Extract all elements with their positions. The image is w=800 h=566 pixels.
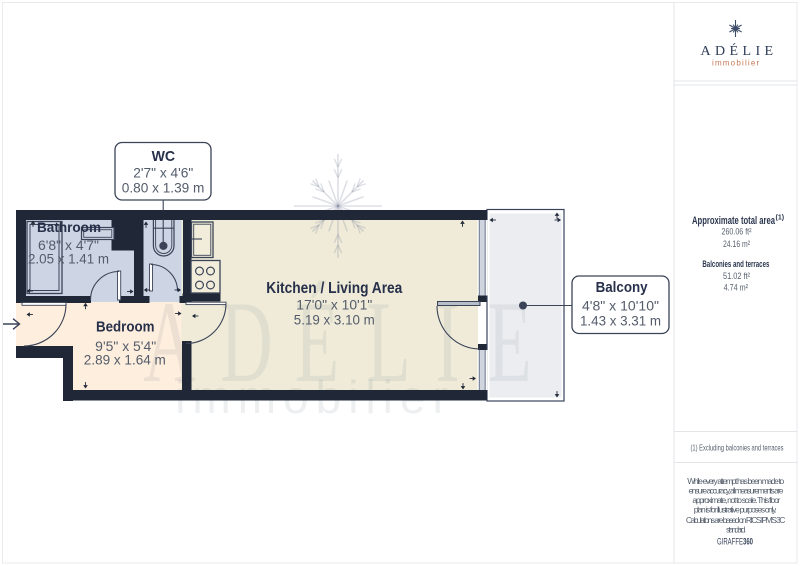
svg-text:Balconies and terraces: Balconies and terraces — [702, 259, 769, 270]
svg-text:Calculations are based on RICS: Calculations are based on RICS IPMS 3C — [686, 515, 786, 525]
svg-text:Kitchen / Living Area: Kitchen / Living Area — [266, 280, 402, 297]
svg-text:While every attempt has been m: While every attempt has been made to — [687, 476, 784, 486]
svg-text:5.19 x 3.10 m: 5.19 x 3.10 m — [294, 312, 375, 328]
svg-text:standard.: standard. — [726, 525, 746, 535]
svg-text:2.05 x 1.41 m: 2.05 x 1.41 m — [28, 252, 109, 267]
svg-text:51.02 ft²: 51.02 ft² — [723, 271, 750, 282]
svg-text:1.43 x 3.31 m: 1.43 x 3.31 m — [580, 313, 661, 329]
svg-text:Approximate total area: Approximate total area — [692, 215, 776, 227]
svg-text:17'0" x 10'1": 17'0" x 10'1" — [296, 297, 372, 313]
svg-text:4.74 m²: 4.74 m² — [724, 283, 749, 294]
svg-text:(1) Excluding balconies and te: (1) Excluding balconies and terraces — [691, 443, 784, 453]
svg-text:Bedroom: Bedroom — [96, 318, 155, 335]
svg-text:2.89 x 1.64 m: 2.89 x 1.64 m — [84, 353, 166, 368]
svg-text:E: E — [487, 278, 531, 408]
svg-text:approximate, not to scale. Thi: approximate, not to scale. This floor — [692, 495, 780, 505]
svg-text:(1): (1) — [776, 215, 785, 222]
svg-text:Bathroom: Bathroom — [37, 219, 101, 235]
svg-text:ADÉLIE: ADÉLIE — [701, 42, 778, 59]
svg-text:24.16 m²: 24.16 m² — [723, 239, 750, 250]
svg-text:immobilier: immobilier — [712, 59, 760, 68]
svg-text:WC: WC — [152, 148, 176, 165]
svg-text:GIRAFFE360: GIRAFFE360 — [717, 537, 753, 548]
svg-text:Balcony: Balcony — [596, 279, 649, 296]
svg-text:0.80 x 1.39 m: 0.80 x 1.39 m — [122, 180, 205, 196]
svg-text:4'8" x 10'10": 4'8" x 10'10" — [582, 298, 659, 314]
svg-text:260.06 ft²: 260.06 ft² — [722, 227, 752, 238]
svg-text:ensure accuracy, all measureme: ensure accuracy, all measurements are — [689, 486, 784, 496]
svg-text:2'7" x 4'6": 2'7" x 4'6" — [133, 165, 193, 181]
svg-text:plan is for illustrative purpo: plan is for illustrative purposes only. — [694, 505, 777, 515]
